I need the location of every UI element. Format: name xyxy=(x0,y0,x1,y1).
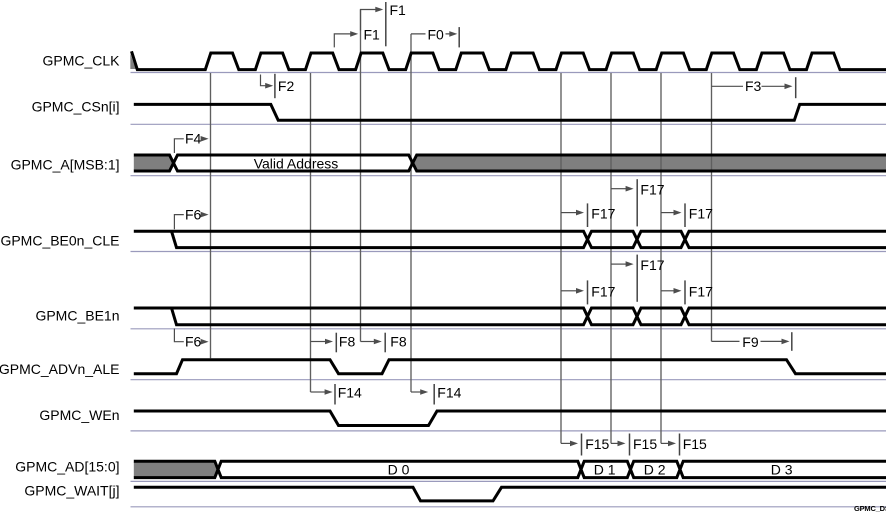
svg-text:GPMC_ADVn_ALE: GPMC_ADVn_ALE xyxy=(0,361,120,377)
svg-text:GPMC_WAIT[j]: GPMC_WAIT[j] xyxy=(24,482,119,498)
svg-text:F0: F0 xyxy=(428,27,445,43)
svg-text:D 0: D 0 xyxy=(388,462,410,478)
svg-text:GPMC_CLK: GPMC_CLK xyxy=(42,52,120,68)
svg-text:F17: F17 xyxy=(689,205,713,221)
svg-text:GPMC_CSn[i]: GPMC_CSn[i] xyxy=(32,99,120,115)
svg-text:D 3: D 3 xyxy=(771,462,793,478)
svg-text:GPMC_DS1: GPMC_DS1 xyxy=(854,504,886,513)
svg-text:F15: F15 xyxy=(683,436,707,452)
svg-text:F1: F1 xyxy=(364,27,381,43)
svg-text:F15: F15 xyxy=(633,436,657,452)
svg-text:F6: F6 xyxy=(185,333,202,349)
svg-text:GPMC_A[MSB:1]: GPMC_A[MSB:1] xyxy=(11,156,120,172)
svg-text:F8: F8 xyxy=(339,333,356,349)
svg-text:F3: F3 xyxy=(745,78,762,94)
svg-text:F1: F1 xyxy=(390,2,407,18)
svg-text:D 2: D 2 xyxy=(644,462,666,478)
svg-text:F4: F4 xyxy=(185,131,202,147)
svg-text:F9: F9 xyxy=(742,334,759,350)
svg-text:F6: F6 xyxy=(185,206,202,222)
svg-text:GPMC_BE0n_CLE: GPMC_BE0n_CLE xyxy=(0,233,119,249)
svg-text:GPMC_BE1n: GPMC_BE1n xyxy=(35,307,119,323)
svg-text:F14: F14 xyxy=(338,384,362,400)
svg-text:F17: F17 xyxy=(689,284,713,300)
svg-text:F15: F15 xyxy=(585,436,609,452)
svg-text:F17: F17 xyxy=(640,257,664,273)
svg-text:GPMC_WEn: GPMC_WEn xyxy=(39,407,119,423)
svg-text:F17: F17 xyxy=(640,181,664,197)
svg-text:F8: F8 xyxy=(390,333,407,349)
svg-text:Valid Address: Valid Address xyxy=(254,155,339,171)
svg-text:F17: F17 xyxy=(591,205,615,221)
svg-text:GPMC_AD[15:0]: GPMC_AD[15:0] xyxy=(15,459,119,475)
svg-text:F2: F2 xyxy=(278,78,295,94)
svg-text:F17: F17 xyxy=(591,284,615,300)
svg-text:D 1: D 1 xyxy=(594,462,616,478)
svg-text:F14: F14 xyxy=(437,384,461,400)
